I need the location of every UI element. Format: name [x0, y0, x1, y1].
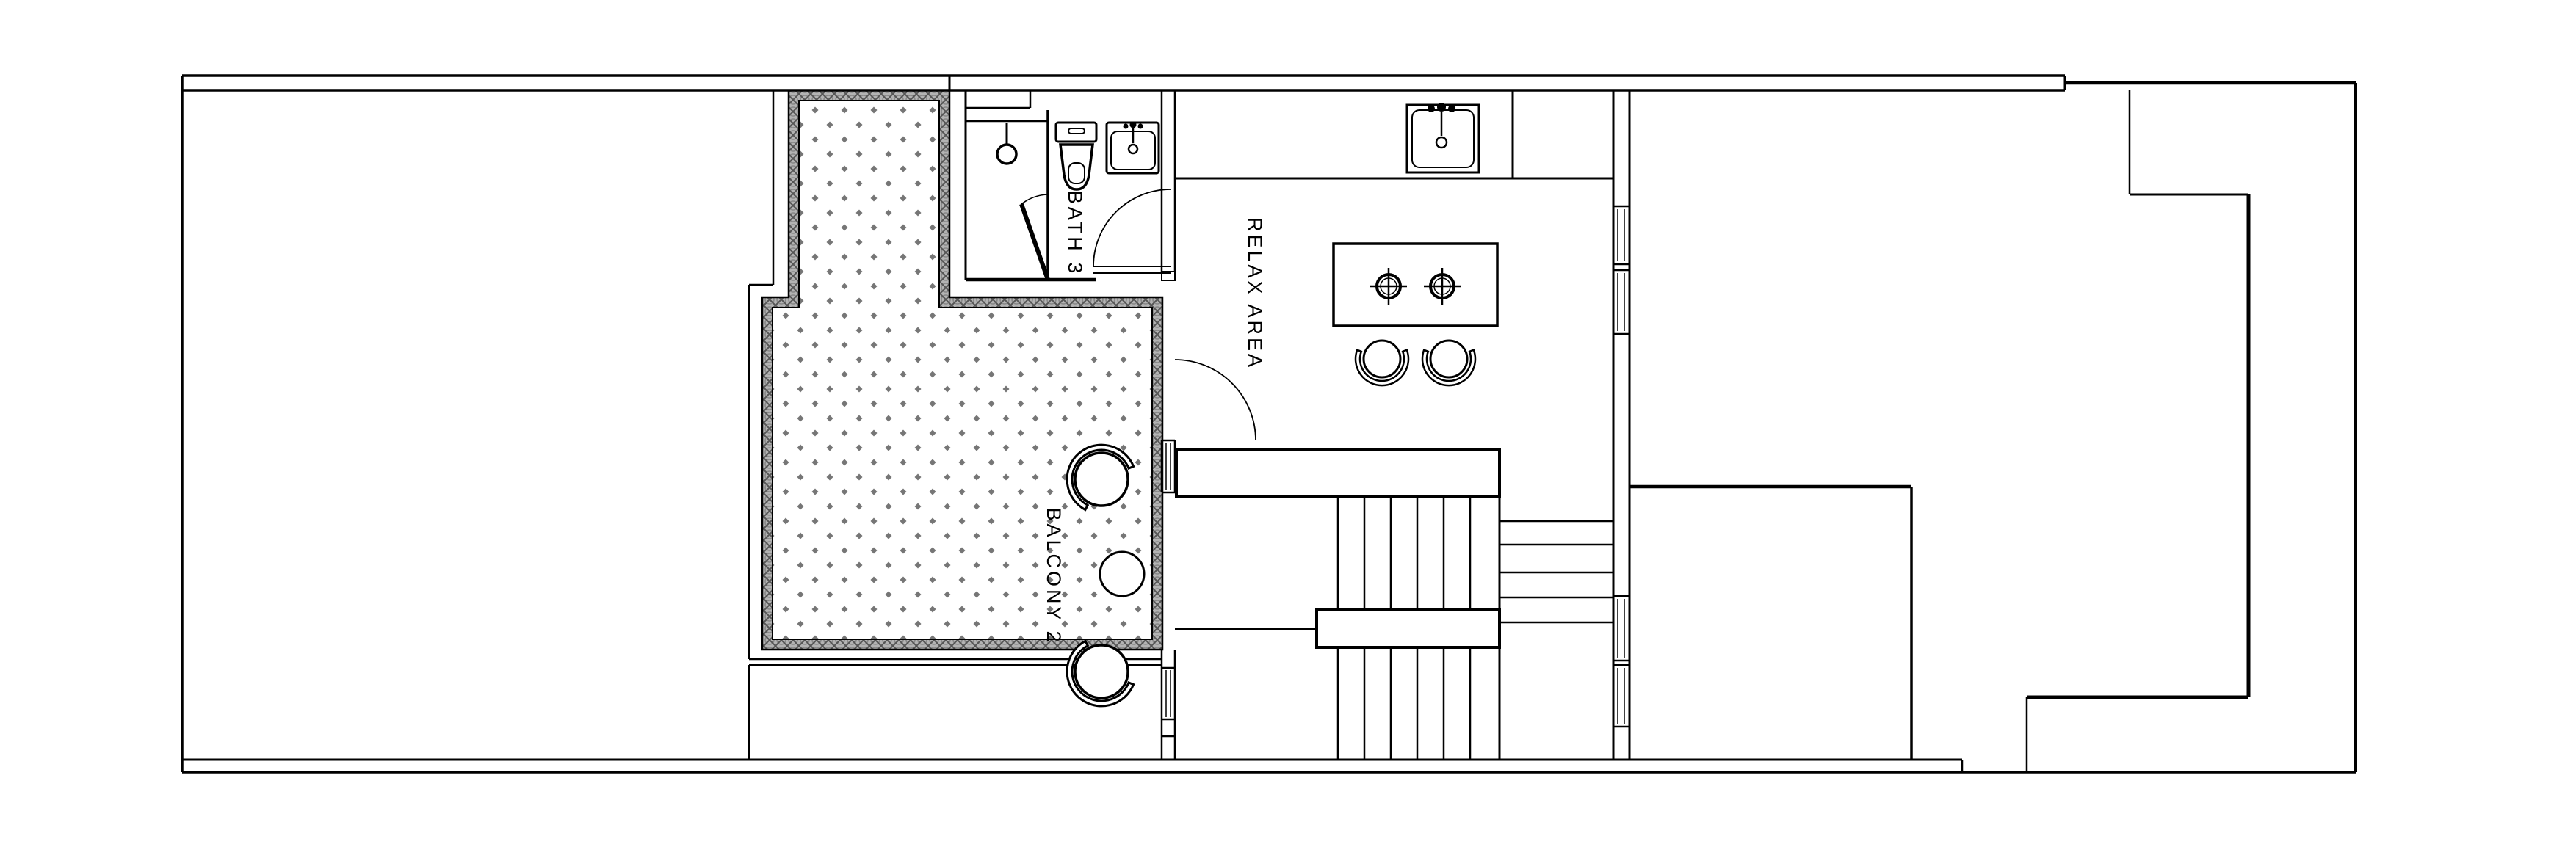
floor-plan-canvas: BATH 3 RELAX AREA BALCONY 2	[0, 0, 2576, 858]
shower-door	[1021, 194, 1048, 280]
stair-mid-landing	[1317, 609, 1499, 647]
relax-area-label: RELAX AREA	[1244, 217, 1266, 370]
cooktop-island	[1334, 244, 1497, 326]
window-segment-icons	[1613, 206, 1629, 727]
dining-chair-icon	[1356, 341, 1408, 385]
shower-head-icon	[997, 123, 1016, 164]
relax-furniture	[1334, 244, 1497, 385]
stair-treads-horizontal	[1499, 521, 1613, 622]
balcony-door-swing	[1175, 360, 1256, 440]
outer-boundary-walls	[182, 76, 2356, 772]
window-wall	[1613, 90, 1629, 760]
bath-3-label: BATH 3	[1064, 191, 1086, 277]
stair-upper-landing	[1176, 450, 1499, 497]
corridor-wall	[1162, 360, 1256, 760]
bath-door-swing	[1093, 189, 1171, 266]
floor-plan-svg: BATH 3 RELAX AREA BALCONY 2	[0, 0, 2576, 858]
dining-chair-icon	[1422, 341, 1475, 385]
toilet-icon	[1056, 123, 1096, 189]
kitchen-counter	[1175, 90, 1613, 178]
kitchen-sink-icon	[1407, 103, 1479, 172]
staircase	[1175, 450, 1613, 760]
bathroom-sink-icon	[1107, 122, 1159, 174]
balcony-side-table-icon	[1100, 552, 1144, 596]
balcony-2-label: BALCONY 2	[1043, 507, 1065, 644]
